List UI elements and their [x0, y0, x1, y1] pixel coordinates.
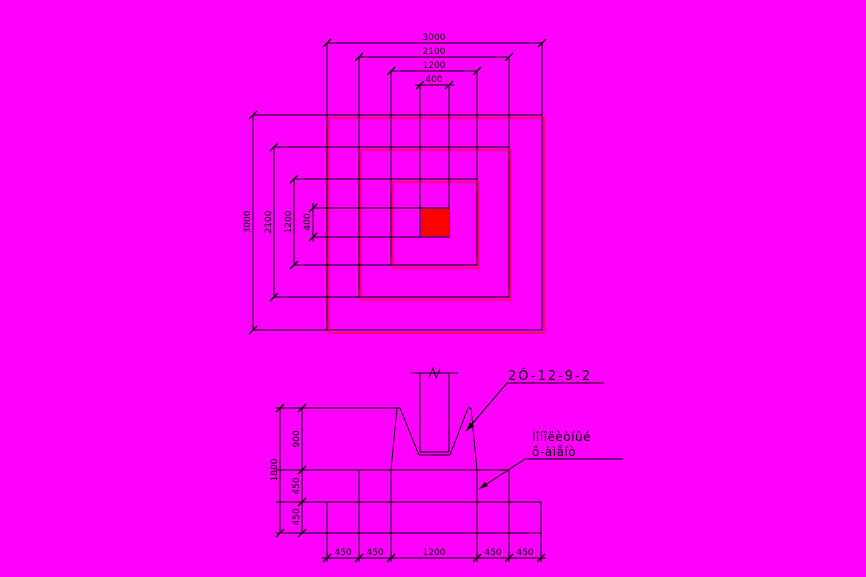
dim-label: 450 [366, 548, 383, 558]
plan-column-fill [421, 209, 449, 236]
dim-label: 450 [484, 548, 501, 558]
dim-label: 450 [292, 477, 302, 494]
cad-drawing-area: 3000 2100 1200 400 3000 2100 [0, 0, 866, 577]
dim-label: 1200 [284, 210, 294, 233]
dim-label: 3000 [243, 210, 253, 233]
foundation-note-line1: Ìîíîëèòíûé [532, 429, 591, 444]
dim-label: 2100 [264, 210, 274, 233]
dim-label: 400 [425, 75, 442, 85]
dim-label: 400 [303, 213, 313, 230]
cad-canvas[interactable]: 3000 2100 1200 400 3000 2100 [0, 0, 866, 577]
dim-label: 3000 [423, 33, 446, 43]
viewport-background [0, 0, 866, 577]
dim-label: 450 [516, 548, 533, 558]
dim-label: 450 [334, 548, 351, 558]
dim-label: 450 [292, 508, 302, 525]
dim-label: 2100 [423, 47, 446, 57]
foundation-note-line2: ô-àìåíò [532, 445, 576, 459]
dim-label: 900 [292, 430, 302, 447]
dim-label: 1200 [423, 61, 446, 71]
dim-label: 1200 [423, 548, 446, 558]
rebar-mark-label: 2Ô-12-9-2 [508, 368, 592, 384]
